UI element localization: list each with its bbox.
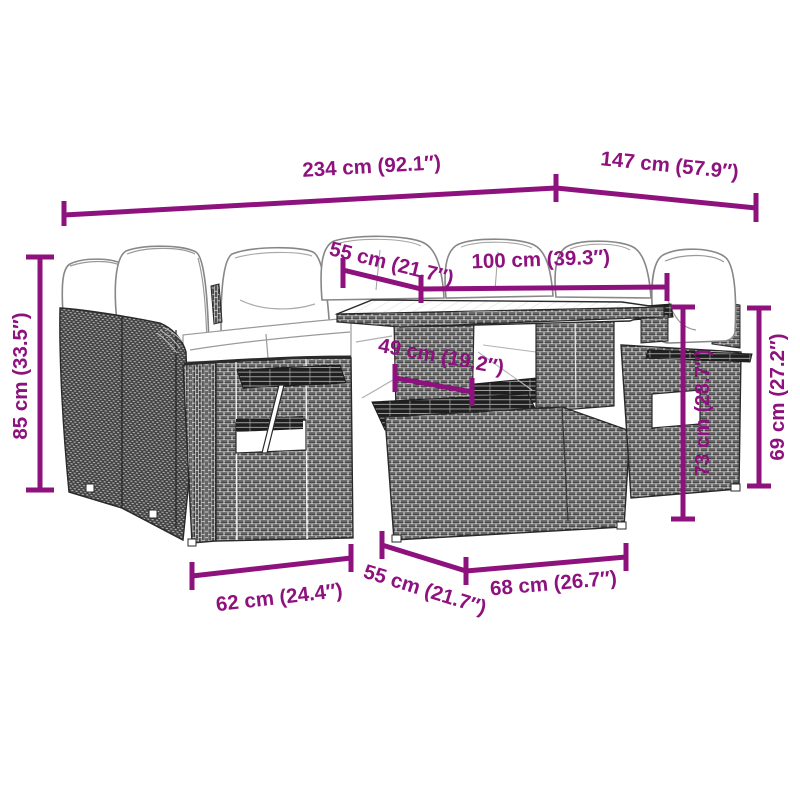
- svg-text:85 cm (33.5″): 85 cm (33.5″): [9, 312, 32, 439]
- svg-text:69 cm (27.2″): 69 cm (27.2″): [766, 333, 789, 460]
- svg-text:73 cm (28.7″): 73 cm (28.7″): [691, 349, 714, 476]
- svg-text:100 cm (39.3″): 100 cm (39.3″): [471, 246, 610, 274]
